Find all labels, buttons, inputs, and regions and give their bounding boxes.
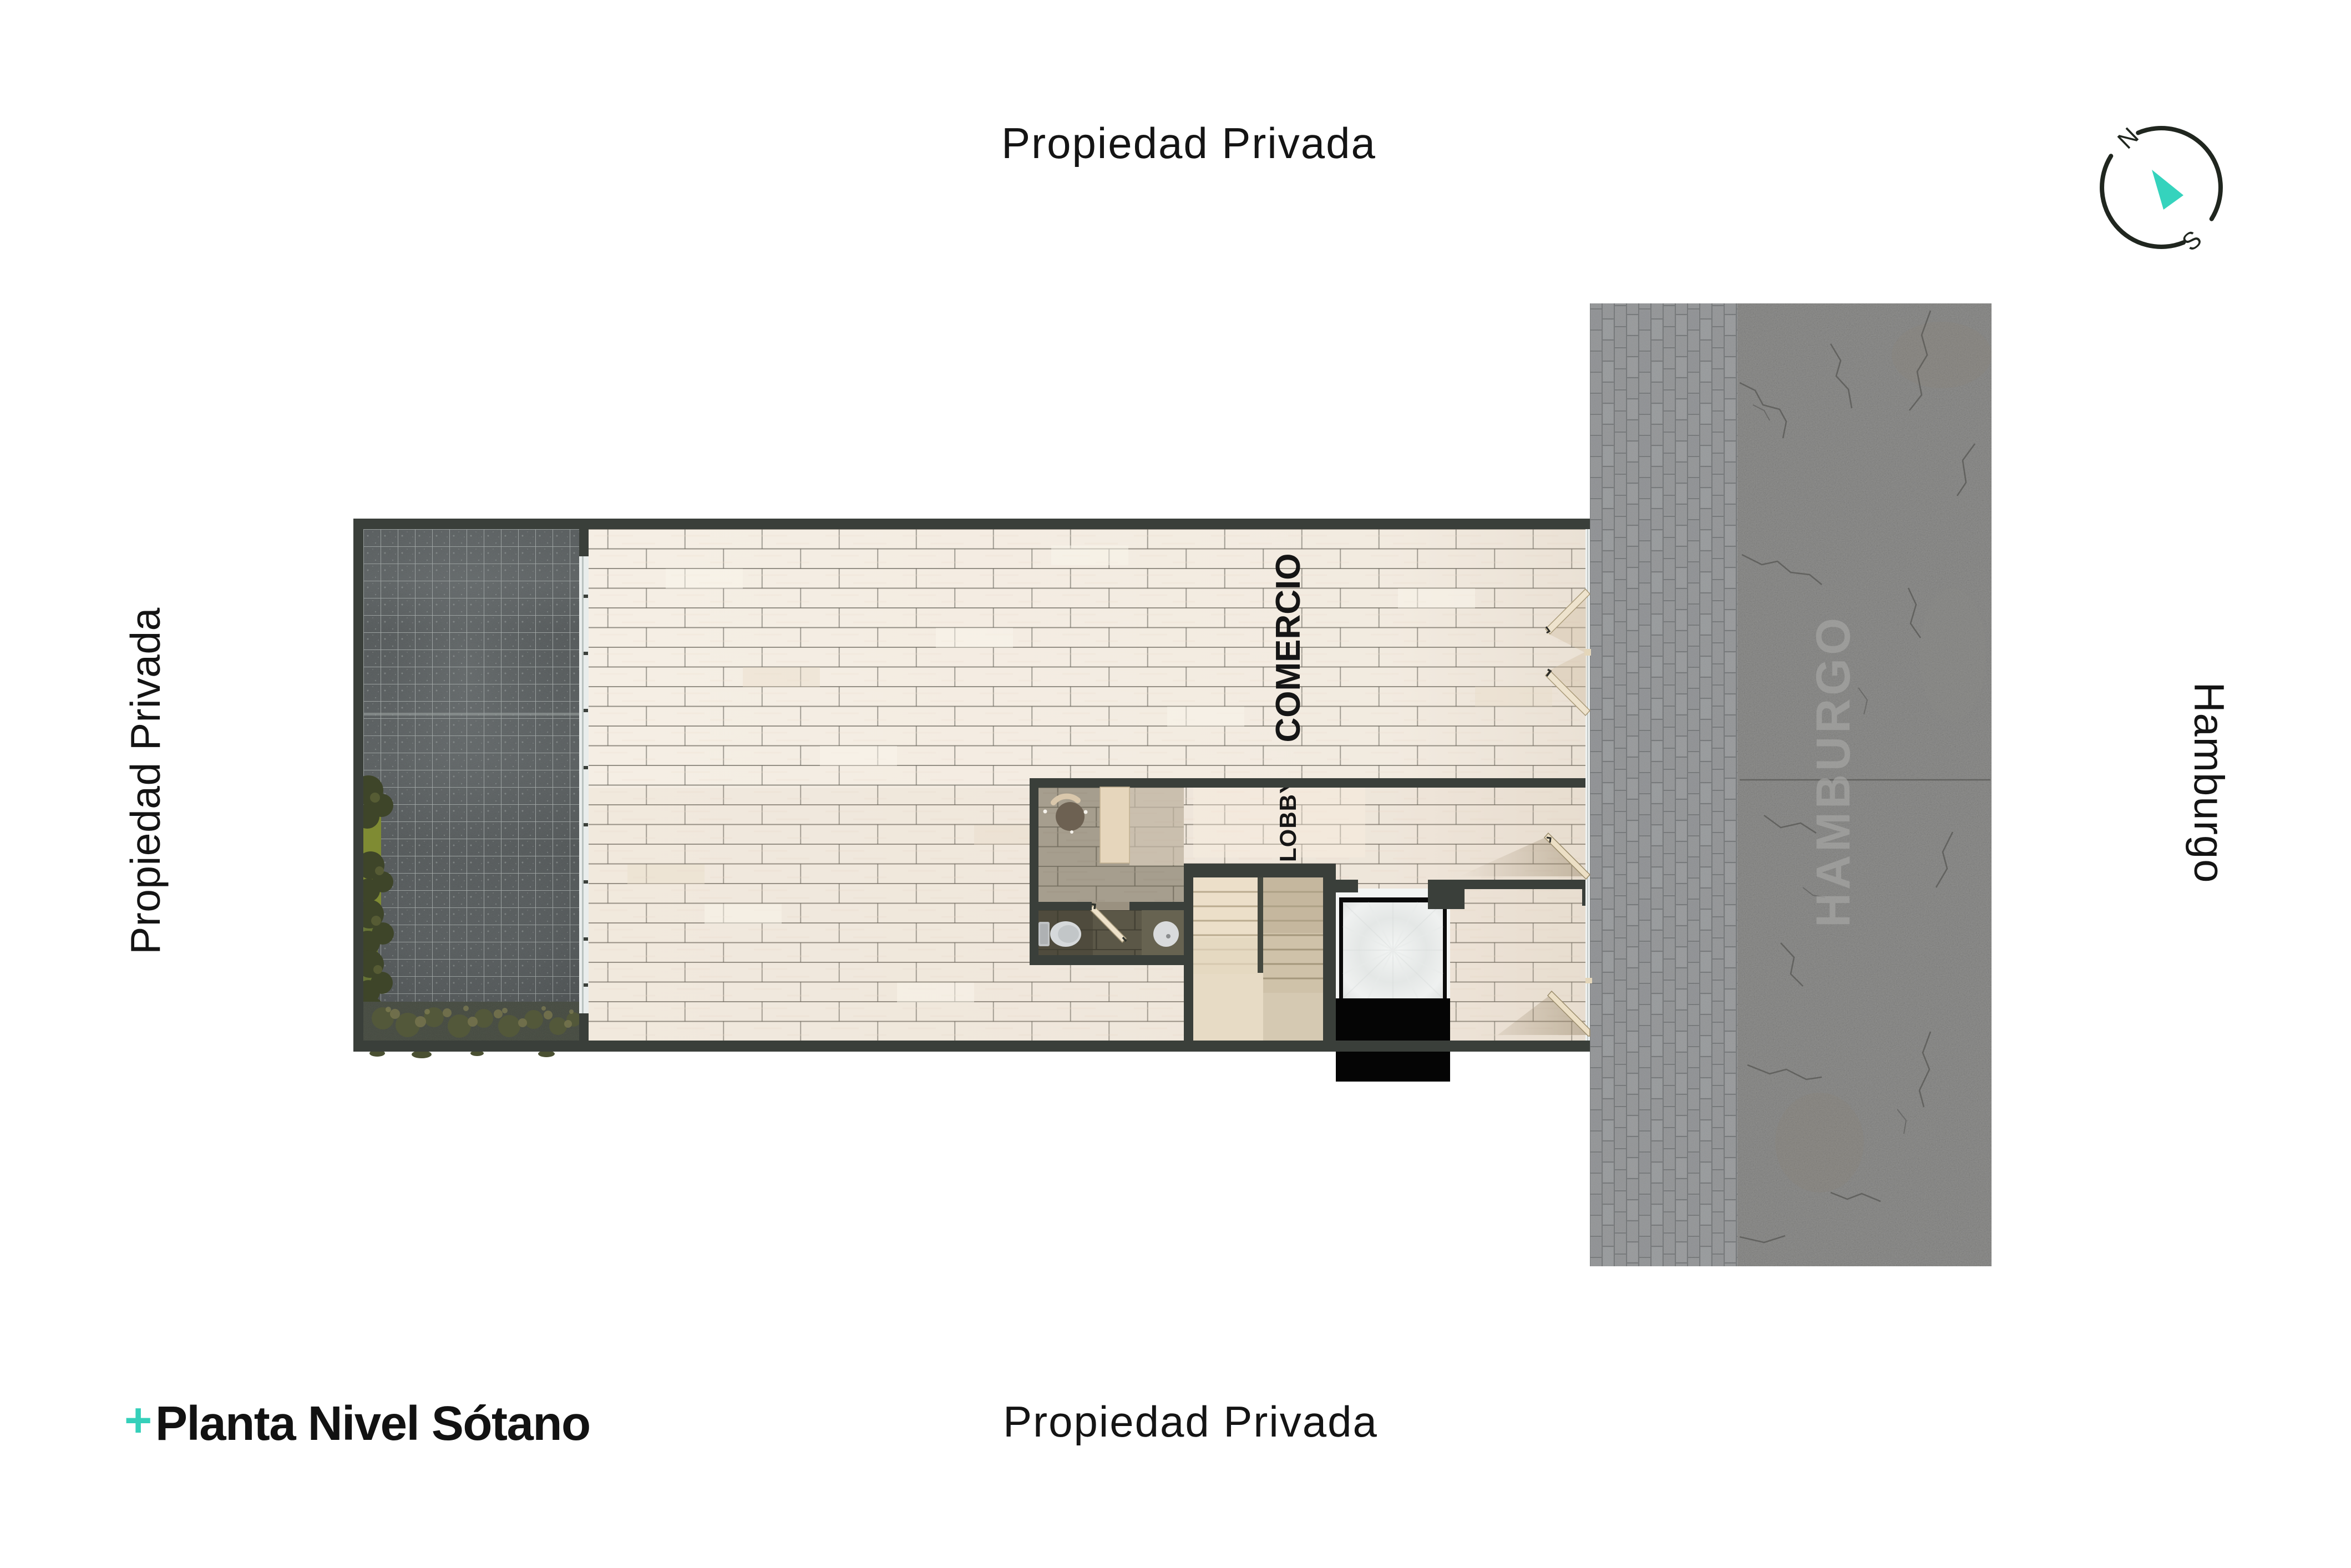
svg-text:+: + [124,1394,152,1447]
svg-text:LOBBY: LOBBY [1275,778,1301,862]
svg-text:Hamburgo: Hamburgo [2185,682,2232,884]
svg-text:Propiedad Privada: Propiedad Privada [122,607,169,955]
svg-text:Propiedad Privada: Propiedad Privada [1003,1397,1378,1446]
svg-text:Propiedad Privada: Propiedad Privada [1001,119,1376,168]
svg-text:COMERCIO: COMERCIO [1269,554,1308,743]
svg-text:HAMBURGO: HAMBURGO [1807,615,1860,927]
svg-text:Planta Nivel Sótano: Planta Nivel Sótano [155,1397,590,1450]
